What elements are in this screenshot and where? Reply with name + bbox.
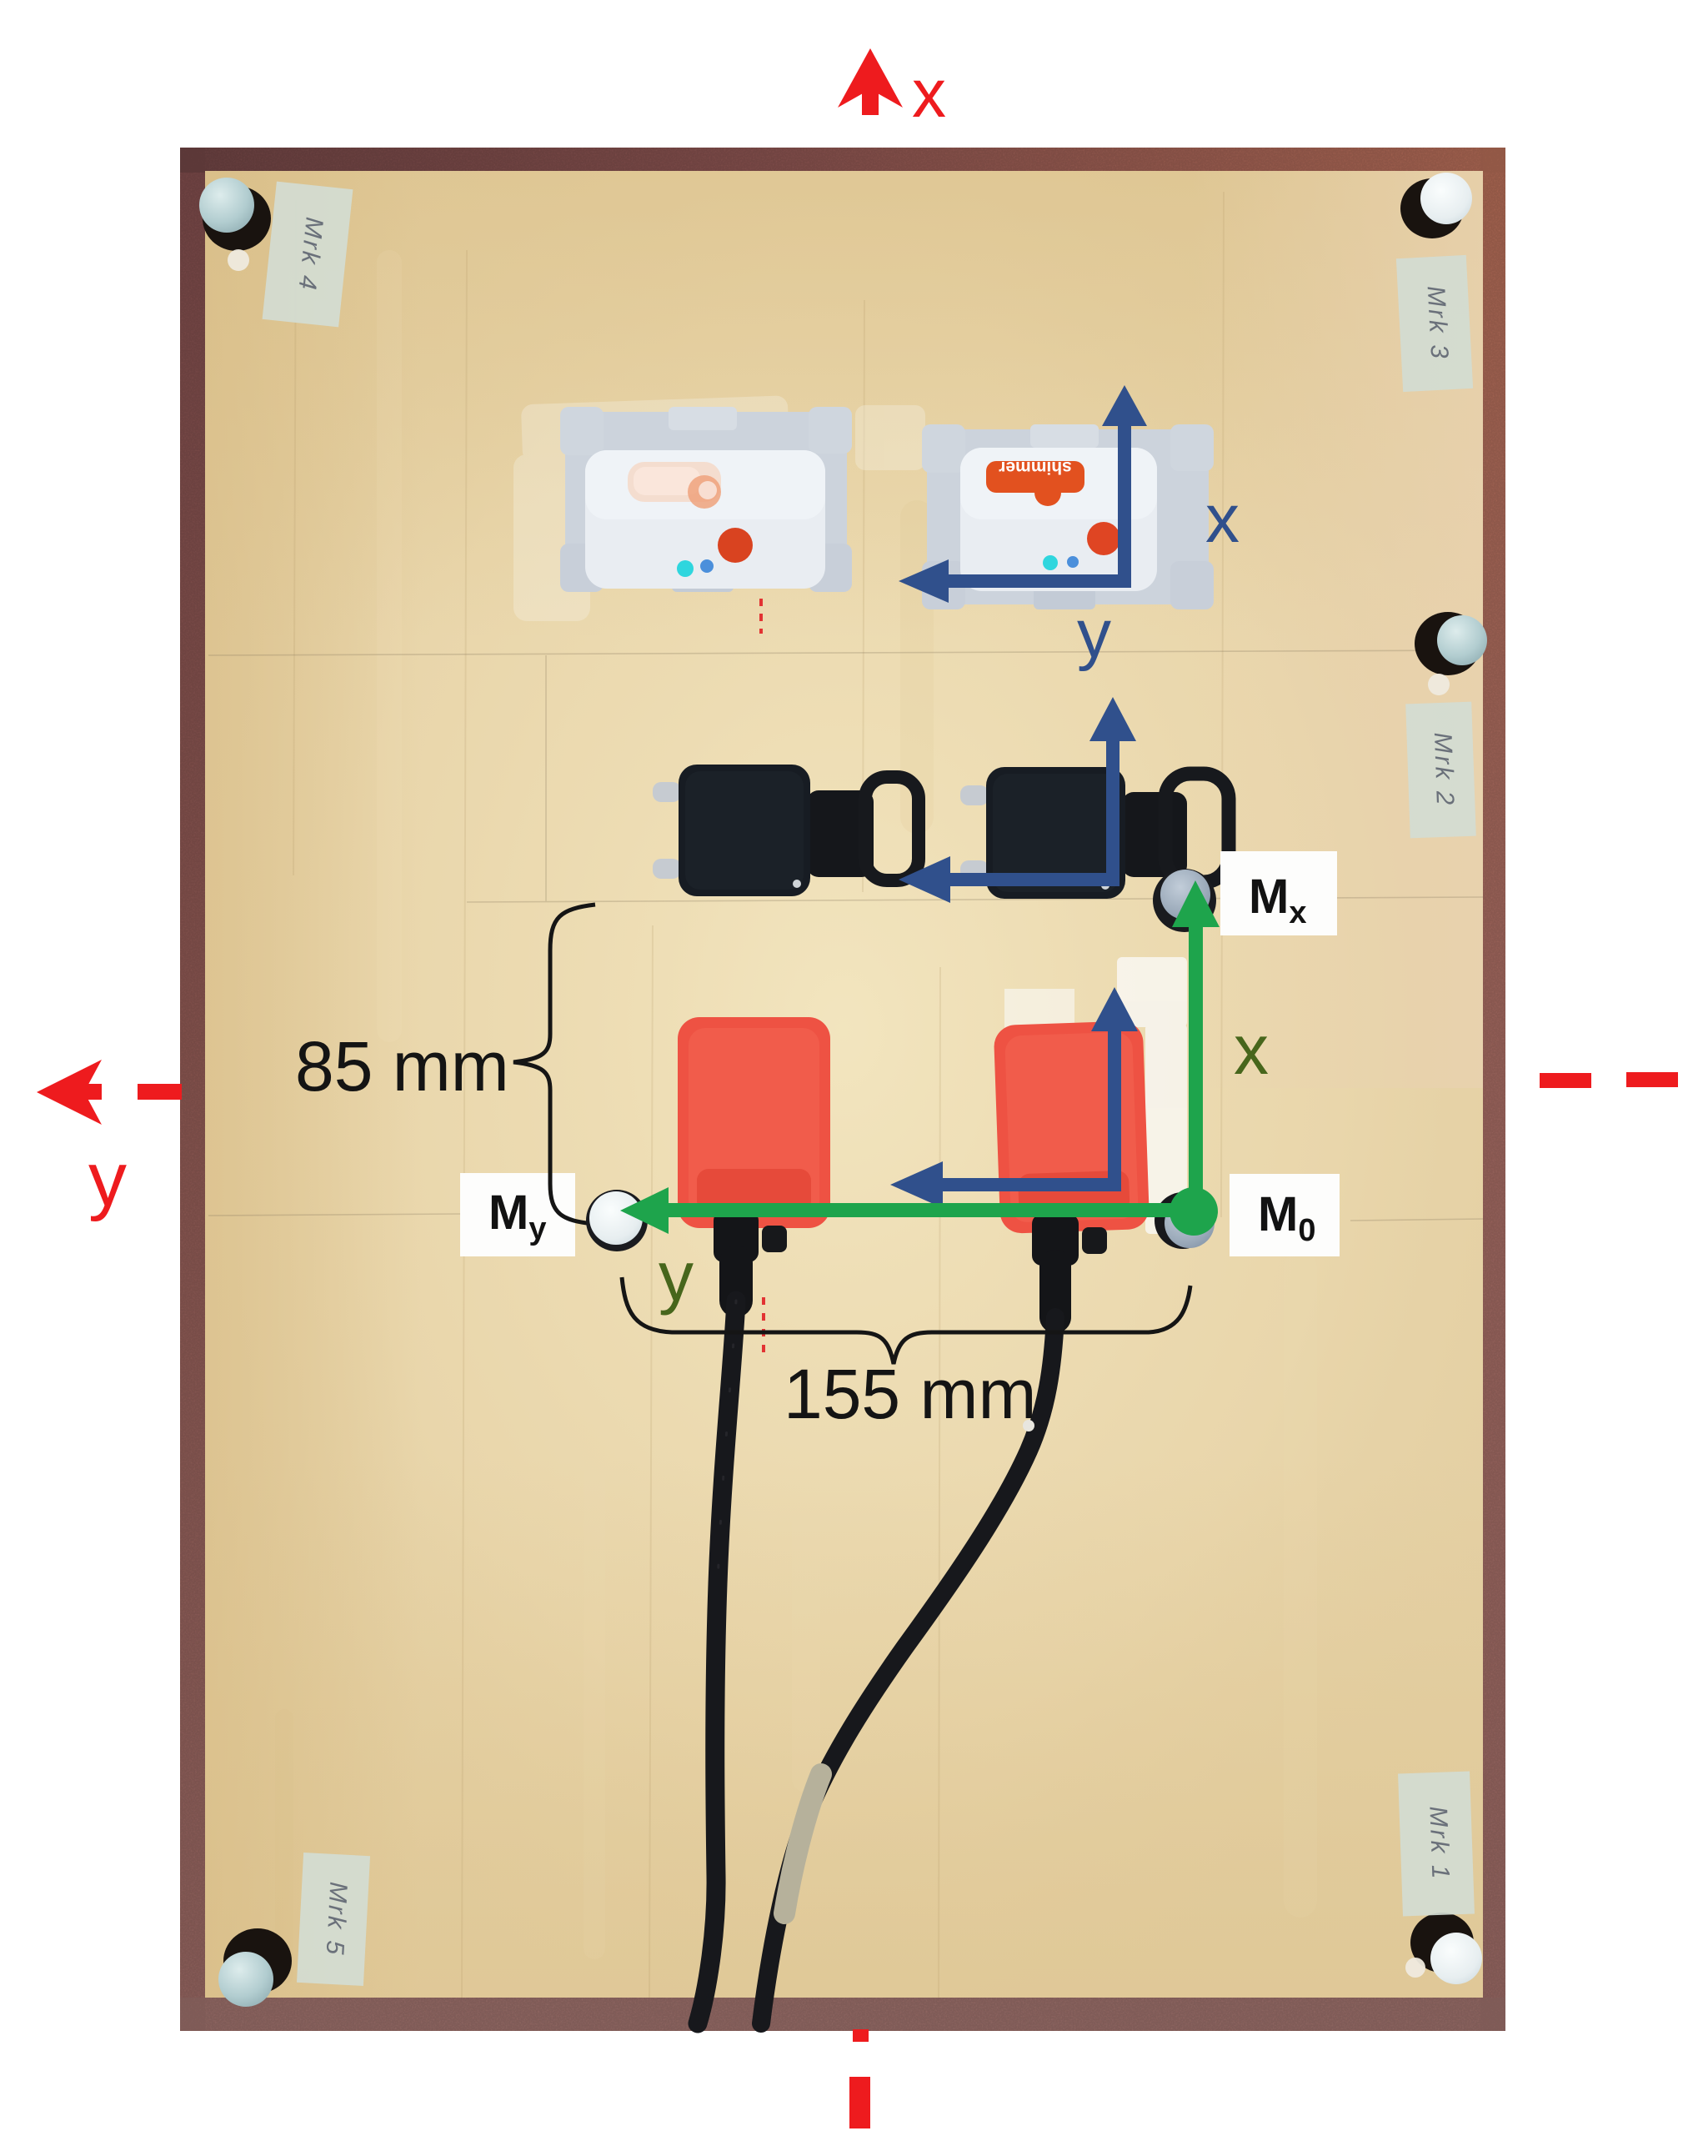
svg-text:Mrk 3: Mrk 3	[1422, 285, 1454, 362]
svg-text:x: x	[1205, 481, 1240, 557]
svg-text:y: y	[88, 1137, 127, 1222]
svg-text:y: y	[1077, 596, 1111, 672]
svg-text:85 mm: 85 mm	[295, 1027, 509, 1106]
svg-text:155 mm: 155 mm	[784, 1355, 1036, 1433]
svg-text:Mrk 2: Mrk 2	[1429, 732, 1459, 808]
svg-text:Mrk 1: Mrk 1	[1424, 1806, 1454, 1882]
svg-text:x: x	[912, 56, 946, 132]
svg-text:y: y	[659, 1237, 694, 1316]
svg-text:Mrk 5: Mrk 5	[321, 1881, 353, 1958]
svg-text:x: x	[1234, 1010, 1269, 1089]
svg-text:shimmer: shimmer	[999, 458, 1072, 477]
